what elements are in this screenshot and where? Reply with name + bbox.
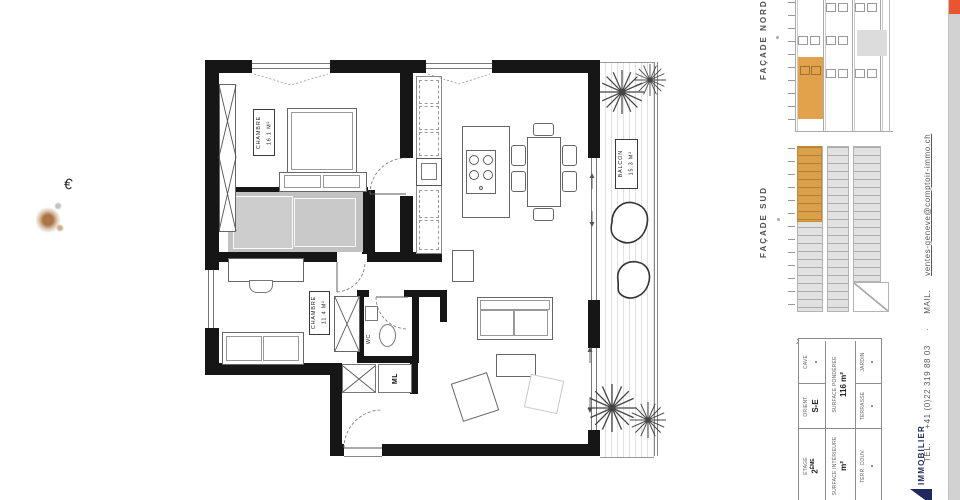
facade-floor-ticks [788, 148, 795, 310]
shower [294, 198, 356, 247]
table-cell-terr-couv: TERR. COUV. - [856, 428, 881, 500]
facade-nord-label: FAÇADE NORD [759, 0, 768, 80]
facade-window [867, 3, 877, 12]
sideboard [452, 250, 474, 282]
pillow [323, 175, 360, 188]
wall [588, 60, 600, 158]
facade-window [826, 36, 836, 45]
room-label-ml: ML [392, 373, 399, 384]
balcony-deck [600, 62, 654, 458]
armchair [451, 372, 500, 422]
window [426, 60, 492, 73]
entry-wardrobe [342, 364, 376, 393]
washing-machine-closet: ML [378, 364, 412, 393]
facade-band [853, 146, 881, 282]
facade-window [838, 36, 848, 45]
sliding-door [588, 158, 600, 300]
facade-window [838, 3, 848, 12]
facade-sud-label: FAÇADE SUD [759, 186, 768, 258]
facade-sud-drawing [795, 144, 895, 314]
room-label-chambre1: CHAMBRE16.1 M² [253, 109, 275, 156]
facade-nord-dot [776, 36, 779, 39]
unit-info-table: ÉTAGE 2ÈME ORIENT. S-E CAVE - SURFACE IN… [798, 338, 882, 500]
wardrobe [334, 296, 360, 352]
facade-window [838, 69, 848, 78]
floor-plan-page: € [0, 0, 960, 500]
chair [533, 208, 554, 221]
mail-label: MAIL. [923, 290, 932, 314]
daybed-cushion [263, 336, 299, 361]
wall [330, 444, 344, 456]
highlighted-unit-sud [797, 146, 822, 222]
chair [511, 145, 526, 166]
wall [382, 444, 600, 456]
facade-line [880, 0, 883, 131]
contact-line: TEL.+41 (0)22 319 88 03·MAIL.ventes-gene… [923, 134, 932, 462]
table-cell-surface-ponderee: SURFACE PONDÉRÉE 116 m² [826, 341, 856, 428]
facade-floor-ticks [788, 2, 795, 130]
desk [228, 258, 304, 282]
window [252, 60, 330, 73]
sofa-cushion [480, 310, 514, 336]
facade-gray-block [857, 30, 887, 56]
tel-number: +41 (0)22 319 88 03 [923, 345, 932, 429]
facade-line [852, 0, 855, 131]
logo-text: IMMOBILIER [917, 425, 926, 485]
chair [562, 145, 577, 166]
logo-triangle-icon [910, 489, 932, 500]
table-cell-jardin: JARDIN - [856, 341, 881, 383]
kitchen-cabinet [419, 80, 439, 104]
chair [562, 171, 577, 192]
facade-notch [853, 282, 889, 312]
chair [533, 123, 554, 136]
facade-window [867, 69, 877, 78]
desk-chair [249, 280, 273, 293]
bed-mattress [291, 112, 353, 170]
highlighted-unit-nord [798, 57, 823, 119]
wall [330, 60, 426, 73]
toilet-tank [365, 306, 378, 321]
window [205, 270, 219, 328]
separator-dot: · [923, 328, 932, 331]
kitchen-cabinet [419, 132, 439, 156]
entrance-opening [344, 444, 382, 457]
chair [511, 171, 526, 192]
wall [588, 300, 600, 348]
email-link[interactable]: ventes-geneve@comptoir-immo.ch [923, 134, 932, 276]
toilet-bowl [379, 324, 396, 347]
kitchen-cabinet [419, 106, 439, 130]
table-cell-surface-interieure: SURFACE INTÉRIEURE m² [826, 428, 856, 500]
balcony-railing [654, 62, 658, 456]
table-cell-terrasse: TERRASSE - [856, 383, 881, 428]
kitchen-cabinet [419, 190, 439, 218]
sketch-chair [524, 374, 564, 414]
pillow [284, 175, 321, 188]
facade-window [855, 69, 865, 78]
facade-window [855, 3, 865, 12]
wall [412, 290, 419, 363]
facade-nord-drawing [795, 0, 893, 132]
wall [205, 60, 219, 270]
daybed-cushion [226, 336, 262, 361]
sofa-cushion [514, 310, 548, 336]
accent-orange-block [949, 0, 960, 14]
room-label-balcon: BALCON15.3 M² [615, 139, 638, 189]
room-label-chambre2: CHAMBRE11.4 M² [309, 291, 330, 335]
facade-band [827, 146, 849, 312]
door-arc [344, 410, 382, 448]
wall [440, 297, 447, 322]
facade-window [798, 36, 808, 45]
wall [400, 196, 413, 254]
facade-window [810, 36, 820, 45]
door-arc [376, 297, 408, 329]
facade-window [800, 66, 810, 75]
page-edge-strip [948, 0, 960, 500]
door-arc [370, 158, 406, 194]
facade-sud-dot [777, 218, 780, 221]
bathroom-area [228, 192, 363, 252]
facade-window [826, 3, 836, 12]
door-arc [337, 262, 365, 292]
table-cell-orient: ORIENT. S-E [799, 383, 826, 428]
facade-window [811, 66, 821, 75]
facade-line [823, 0, 826, 131]
wall [404, 290, 447, 297]
wall [330, 363, 342, 456]
sliding-door [588, 348, 600, 430]
window-tilt-symbol [254, 74, 490, 85]
bathtub [233, 196, 293, 249]
oven-door [421, 163, 437, 180]
cooktop [466, 150, 496, 194]
wall [362, 190, 375, 254]
dining-table [527, 137, 561, 207]
facade-line [889, 0, 890, 131]
wardrobe [219, 84, 236, 232]
table-cell-cave: CAVE - [799, 341, 826, 383]
agency-logo: IMMOBILIER [903, 425, 939, 500]
wall [400, 73, 413, 158]
facade-window [826, 69, 836, 78]
room-label-wc: WC [366, 334, 372, 344]
kitchen-cabinet [419, 220, 439, 250]
table-cell-etage: ÉTAGE 2ÈME [799, 428, 826, 500]
wall [588, 430, 600, 456]
wall [492, 60, 600, 73]
sofa-back [480, 300, 550, 310]
